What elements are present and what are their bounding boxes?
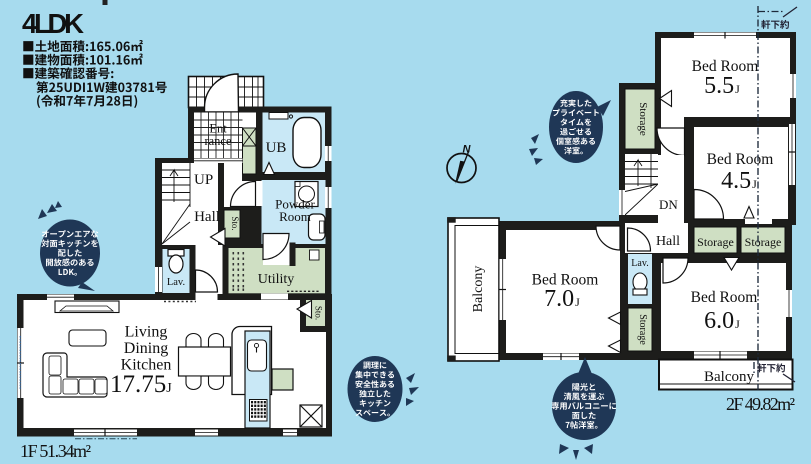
- svg-text:UP: UP: [194, 172, 213, 188]
- svg-text:1F 51.34m²: 1F 51.34m²: [20, 441, 91, 461]
- svg-text:Room: Room: [279, 209, 311, 224]
- svg-text:Storage: Storage: [745, 235, 782, 249]
- svg-text:N: N: [463, 144, 472, 156]
- svg-text:Storage: Storage: [637, 314, 648, 345]
- svg-text:Bed Room: Bed Room: [691, 289, 758, 306]
- svg-text:Living: Living: [125, 324, 168, 341]
- svg-text:UB: UB: [266, 140, 287, 156]
- svg-text:Bed Room: Bed Room: [707, 151, 774, 168]
- svg-text:Storage: Storage: [697, 235, 734, 249]
- svg-text:Hall: Hall: [194, 209, 220, 225]
- svg-text:Balcony: Balcony: [471, 266, 486, 313]
- svg-text:Lav.: Lav.: [631, 258, 648, 269]
- svg-text:Dining: Dining: [124, 340, 168, 357]
- svg-text:rance: rance: [204, 134, 232, 148]
- svg-text:Storage: Storage: [637, 102, 649, 136]
- svg-text:Hall: Hall: [656, 234, 680, 249]
- svg-text:Utility: Utility: [258, 272, 295, 287]
- svg-text:DN: DN: [659, 197, 678, 212]
- svg-text:Sto.: Sto.: [314, 306, 324, 320]
- svg-text:Lav.: Lav.: [167, 277, 185, 288]
- svg-text:Balcony: Balcony: [704, 369, 754, 385]
- svg-text:4LDK: 4LDK: [22, 8, 84, 39]
- svg-text:2F 49.82m²: 2F 49.82m²: [726, 394, 795, 414]
- svg-text:Sto.: Sto.: [230, 216, 240, 230]
- svg-text:17.75J: 17.75J: [110, 371, 172, 398]
